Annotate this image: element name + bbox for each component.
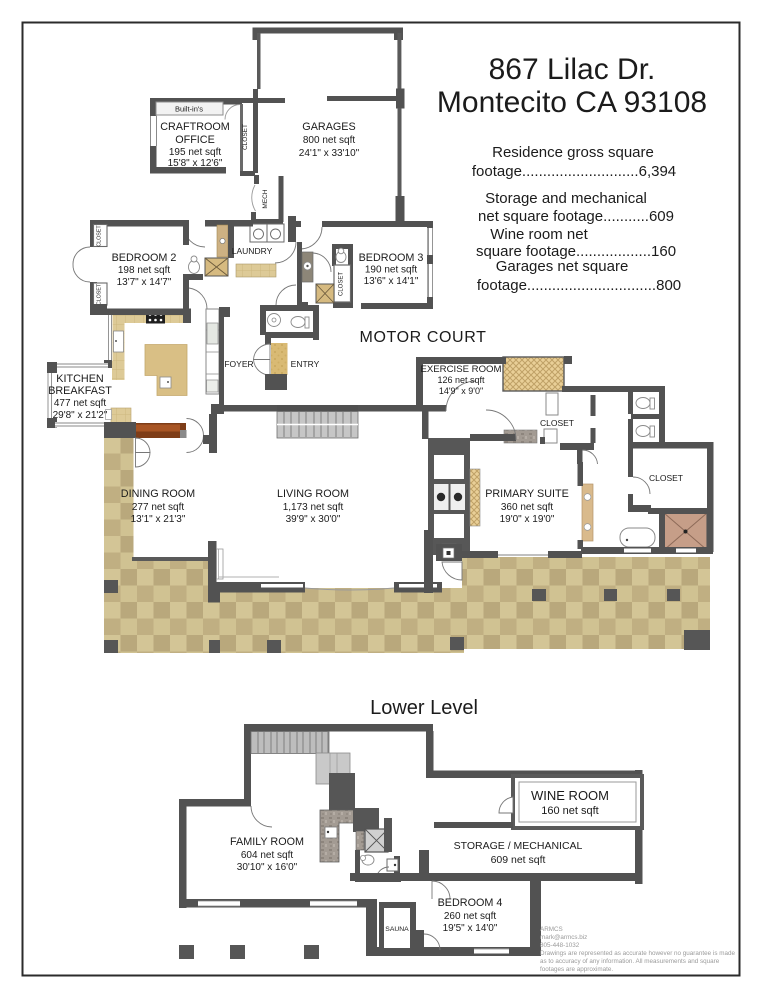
svg-text:CLOSET: CLOSET: [242, 124, 249, 150]
svg-text:CLOSET: CLOSET: [339, 272, 345, 296]
svg-text:BREAKFAST: BREAKFAST: [48, 385, 112, 397]
svg-text:800 net sqft: 800 net sqft: [303, 135, 355, 146]
svg-text:PRIMARY SUITE: PRIMARY SUITE: [485, 488, 569, 500]
svg-text:15'8" x 12'6": 15'8" x 12'6": [168, 158, 223, 169]
svg-text:126 net sqft: 126 net sqft: [437, 375, 485, 385]
svg-text:19'5" x 14'0": 19'5" x 14'0": [443, 923, 498, 934]
svg-text:1,173 net sqft: 1,173 net sqft: [283, 502, 344, 513]
svg-text:OFFICE: OFFICE: [175, 134, 215, 146]
svg-text:Residence gross square: Residence gross square: [492, 144, 654, 161]
svg-text:EXERCISE ROOM: EXERCISE ROOM: [420, 364, 501, 375]
svg-text:Lower Level: Lower Level: [370, 697, 478, 719]
svg-text:footages are approximate.: footages are approximate.: [540, 966, 613, 973]
svg-text:260 net sqft: 260 net sqft: [444, 911, 496, 922]
svg-text:as to accuracy of any informat: as to accuracy of any information. All m…: [540, 958, 720, 965]
svg-text:CLOSET: CLOSET: [97, 225, 103, 247]
svg-text:CLOSET: CLOSET: [649, 473, 683, 483]
svg-text:Wine room net: Wine room net: [490, 226, 588, 243]
svg-text:FAMILY ROOM: FAMILY ROOM: [230, 836, 304, 848]
svg-text:30'10" x 16'0": 30'10" x 16'0": [237, 862, 298, 873]
svg-text:STORAGE / MECHANICAL: STORAGE / MECHANICAL: [454, 840, 583, 852]
svg-text:CLOSET: CLOSET: [97, 283, 103, 305]
svg-text:DINING ROOM: DINING ROOM: [121, 488, 195, 500]
svg-text:867 Lilac Dr.: 867 Lilac Dr.: [489, 53, 656, 86]
svg-text:160 net sqft: 160 net sqft: [541, 805, 599, 817]
svg-text:805-448-1032: 805-448-1032: [540, 942, 580, 949]
svg-text:GARAGES: GARAGES: [302, 121, 355, 133]
svg-text:CLOSET: CLOSET: [540, 418, 574, 428]
svg-text:ARMCS: ARMCS: [540, 926, 563, 933]
svg-text:604 net sqft: 604 net sqft: [241, 850, 293, 861]
svg-text:195 net sqft: 195 net sqft: [169, 147, 221, 158]
svg-text:190 net sqft: 190 net sqft: [365, 265, 417, 276]
svg-text:BEDROOM 4: BEDROOM 4: [438, 897, 503, 909]
svg-text:29'8" x 21'2": 29'8" x 21'2": [53, 410, 108, 421]
svg-text:WINE ROOM: WINE ROOM: [531, 788, 609, 803]
svg-text:ENTRY: ENTRY: [291, 359, 320, 369]
svg-text:BEDROOM 3: BEDROOM 3: [359, 252, 424, 264]
svg-text:360 net sqft: 360 net sqft: [501, 502, 553, 513]
svg-text:KITCHEN: KITCHEN: [56, 373, 103, 385]
svg-text:CRAFTROOM: CRAFTROOM: [160, 121, 230, 133]
svg-text:MOTOR COURT: MOTOR COURT: [360, 329, 487, 346]
svg-text:198 net sqft: 198 net sqft: [118, 265, 170, 276]
svg-text:mark@armcs.biz: mark@armcs.biz: [540, 934, 587, 941]
svg-text:Drawings are represented as ac: Drawings are represented as accurate how…: [540, 950, 735, 957]
svg-text:footage.......................: footage...............................80…: [477, 277, 681, 294]
svg-text:477 net sqft: 477 net sqft: [54, 398, 106, 409]
svg-text:19'0" x 19'0": 19'0" x 19'0": [500, 514, 555, 525]
svg-text:net square footage...........6: net square footage...........609: [478, 208, 674, 225]
svg-text:LAUNDRY: LAUNDRY: [232, 246, 273, 256]
svg-text:277 net sqft: 277 net sqft: [132, 502, 184, 513]
svg-text:14'9" x 9'0": 14'9" x 9'0": [439, 386, 483, 396]
svg-text:Storage and mechanical: Storage and mechanical: [485, 190, 647, 207]
svg-text:Montecito CA 93108: Montecito CA 93108: [437, 86, 707, 119]
svg-text:24'1" x 33'10": 24'1" x 33'10": [299, 148, 360, 159]
svg-text:MECH: MECH: [262, 189, 269, 208]
svg-text:Built-in's: Built-in's: [175, 105, 203, 114]
svg-text:BEDROOM 2: BEDROOM 2: [112, 252, 177, 264]
svg-text:39'9" x 30'0": 39'9" x 30'0": [286, 514, 341, 525]
svg-text:13'1" x 21'3": 13'1" x 21'3": [131, 514, 186, 525]
svg-text:Garages net square: Garages net square: [496, 258, 629, 275]
svg-text:SAUNA: SAUNA: [385, 926, 409, 933]
svg-text:13'7" x 14'7": 13'7" x 14'7": [117, 277, 172, 288]
svg-text:footage.......................: footage............................6,394: [472, 163, 676, 180]
svg-text:FOYER: FOYER: [224, 359, 253, 369]
svg-text:13'6" x 14'1": 13'6" x 14'1": [364, 276, 419, 287]
svg-text:609 net sqft: 609 net sqft: [491, 854, 546, 866]
svg-text:LIVING ROOM: LIVING ROOM: [277, 488, 349, 500]
